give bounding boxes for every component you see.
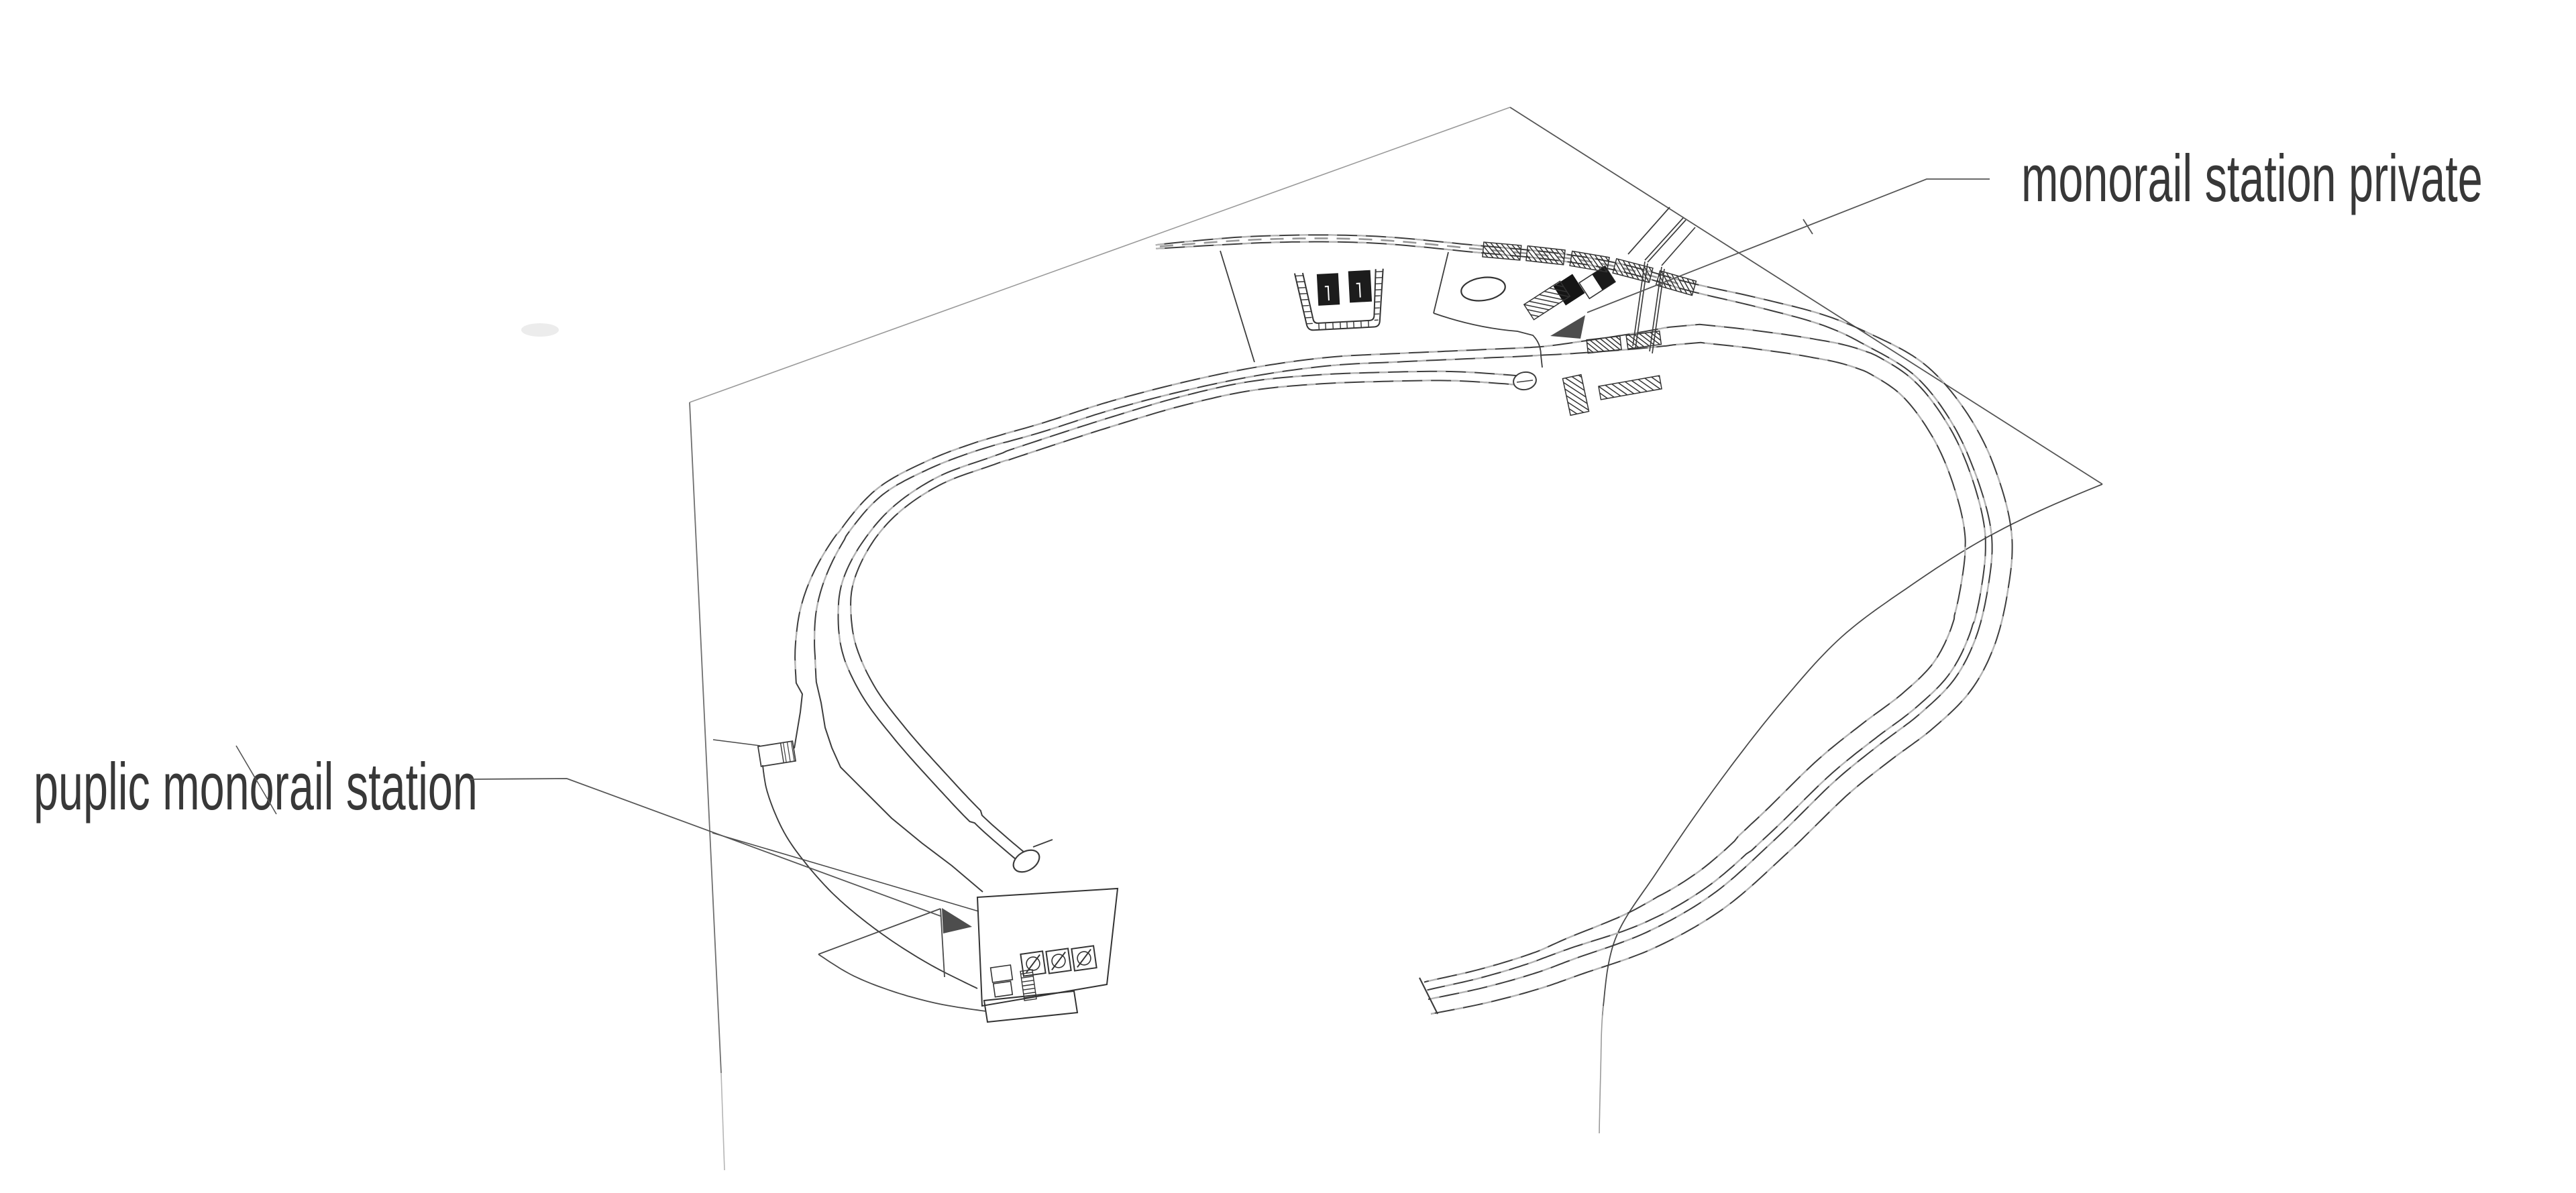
- svg-text:puplic monorail station: puplic monorail station: [34, 750, 478, 823]
- svg-text:monorail station private: monorail station private: [2021, 141, 2483, 215]
